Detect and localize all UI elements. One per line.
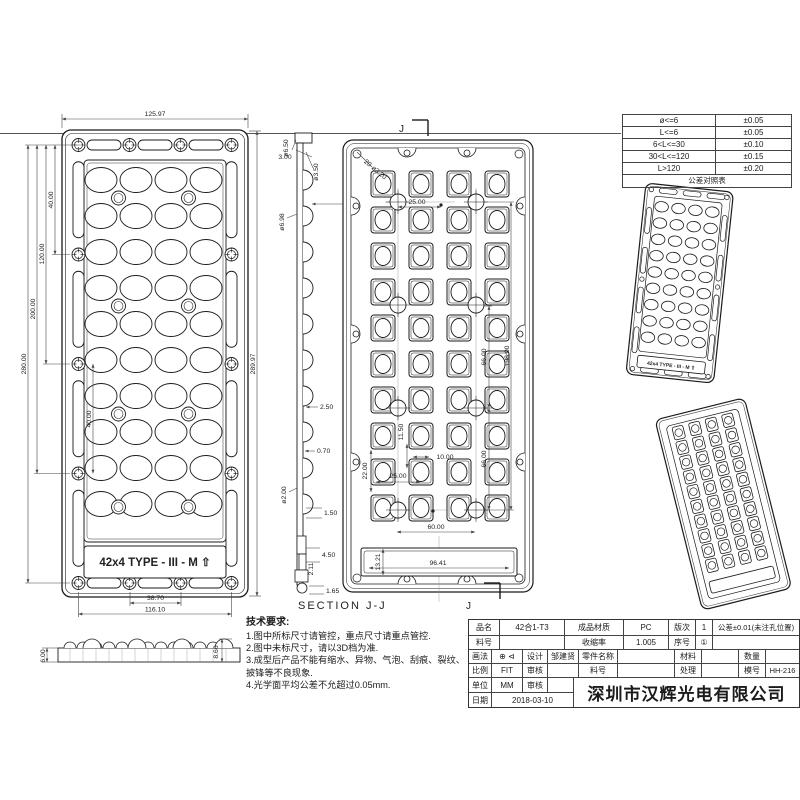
tb-shrinkage: 1.005 xyxy=(624,636,669,649)
section-jj-view: 20-ø3.20 25.00 66.00 66.00 198.00 11.50 … xyxy=(343,120,533,612)
tb-label: 成品材质 xyxy=(565,620,624,635)
dim-side-200: ø2.00 xyxy=(281,486,288,504)
tb-label: 品名 xyxy=(469,620,500,635)
dim-sec-9641: 96.41 xyxy=(429,560,446,567)
dim-side-250: 2.50 xyxy=(320,404,333,411)
tol-range: L<=6 xyxy=(623,127,716,138)
tolerance-row: 30<L<=120 ±0.15 xyxy=(623,151,791,163)
tb-label: 单位 xyxy=(469,678,492,692)
tb-label: 料号 xyxy=(469,636,500,649)
tb-row2: 料号 收缩率 1.005 序号 ① xyxy=(469,636,799,650)
tb-row5: 单位 MM 审核 xyxy=(469,678,573,693)
dim-sec-2200: 22.00 xyxy=(362,462,369,479)
tb-empty xyxy=(713,636,799,649)
dim-flat-600: 6.00 xyxy=(40,649,47,662)
tol-value: ±0.05 xyxy=(716,127,791,138)
tb-label: 设计 xyxy=(523,650,548,663)
drawing-sheet: 42x4 TYPE - III - M ⇧ xyxy=(0,0,800,800)
lens-profile-bumps xyxy=(303,170,313,514)
dim-sec-66a: 66.00 xyxy=(481,348,488,365)
j-bracket-top xyxy=(412,120,428,136)
tb-bottom: 单位 MM 审核 日期 2018-03-10 深圳市汉辉光电有限公司 xyxy=(469,678,799,707)
tb-label: 序号 xyxy=(669,636,696,649)
note-line: 2.图中未标尺寸，请以3D档为准. xyxy=(246,642,474,654)
tol-value: ±0.15 xyxy=(716,151,791,162)
dim-side-300a: 3.00 xyxy=(278,154,291,161)
tolerance-row: ø<=6 ±0.05 xyxy=(623,115,791,127)
iso-view-front: 42x4 TYPE - III - M ⇧ xyxy=(626,183,734,383)
tb-part-name: 42合1-T3 xyxy=(500,620,565,635)
dim-sec-6000: 60.00 xyxy=(427,524,444,531)
tb-tolerance-note: 公差±0.01(未注孔位置) xyxy=(713,620,799,635)
tb-check xyxy=(548,664,579,677)
section-title: SECTION J-J xyxy=(298,600,387,612)
tb-row4: 比例 FIT 审核 料号 处理 模号 HH-216 xyxy=(469,664,799,678)
dim-front-height: 289.97 xyxy=(250,353,257,374)
dim-sec-1321: 13.21 xyxy=(375,553,382,570)
company-name: 深圳市汉辉光电有限公司 xyxy=(574,678,799,707)
tb-row1: 品名 42合1-T3 成品材质 PC 版次 1 公差±0.01(未注孔位置) xyxy=(469,620,799,636)
tb-treatment xyxy=(702,664,739,677)
tb-label: 审核 xyxy=(523,664,548,677)
note-line: 1.图中所标尺寸请管控，重点尺寸请重点管控. xyxy=(246,630,474,642)
j-mark-top: J xyxy=(399,124,404,135)
tb-label: 收缩率 xyxy=(565,636,624,649)
dim-side-211: 2.11 xyxy=(308,562,315,575)
tolerance-footer: 公差对照表 xyxy=(623,175,791,187)
dim-front-11610: 116.10 xyxy=(145,607,166,614)
tb-label: 版次 xyxy=(669,620,696,635)
tb-scale: FIT xyxy=(492,664,523,677)
technical-notes: 技术要求: 1.图中所标尺寸请管控，重点尺寸请重点管控. 2.图中未标尺寸，请以… xyxy=(246,616,474,691)
tb-label: 日期 xyxy=(469,693,492,707)
dim-side-070: 0.70 xyxy=(317,448,330,455)
dim-front-280: 280.00 xyxy=(21,353,28,374)
tb-seq: ① xyxy=(696,636,713,649)
tol-value: ±0.10 xyxy=(716,139,791,150)
tb-row6: 日期 2018-03-10 xyxy=(469,693,573,707)
tb-rev: 1 xyxy=(696,620,713,635)
tolerance-row: 6<L<=30 ±0.10 xyxy=(623,139,791,151)
center-dot-bottom xyxy=(431,509,434,512)
tolerance-row: L>120 ±0.20 xyxy=(623,163,791,175)
tb-label: 画法 xyxy=(469,650,492,663)
projection-symbol: ⊕ ⊲ xyxy=(492,650,523,663)
iso-view-back xyxy=(655,398,792,610)
tol-range: L>120 xyxy=(623,163,716,174)
dim-side-698: ø6.98 xyxy=(279,213,286,231)
tol-value: ±0.05 xyxy=(716,115,791,126)
dim-flat-860: 8.60 xyxy=(213,645,220,658)
tb-check2 xyxy=(548,678,573,692)
tb-unit: MM xyxy=(492,678,523,692)
tb-mold-no: HH-216 xyxy=(766,664,799,677)
tol-range: 6<L<=30 xyxy=(623,139,716,150)
dim-front-width: 125.97 xyxy=(145,111,166,118)
notes-title: 技术要求: xyxy=(246,616,474,629)
tb-label: 零件名称 xyxy=(579,650,618,663)
title-block: 品名 42合1-T3 成品材质 PC 版次 1 公差±0.01(未注孔位置) 料… xyxy=(468,619,800,708)
dim-side-350: ø3.50 xyxy=(313,163,320,181)
dim-sec-25a: 25.00 xyxy=(408,199,425,206)
tb-qty xyxy=(766,650,799,663)
note-line: 3.成型后产品不能有缩水、异物、气泡、刮痕、裂纹、披锋等不良现象. xyxy=(246,654,474,678)
j-mark-bottom: J xyxy=(466,601,471,612)
tb-label: 处理 xyxy=(675,664,702,677)
tb-label: 模号 xyxy=(739,664,766,677)
dim-front-3870: 38.70 xyxy=(147,595,164,602)
front-view: 42x4 TYPE - III - M ⇧ xyxy=(21,111,261,617)
tb-material: PC xyxy=(624,620,669,635)
tol-footer-text: 公差对照表 xyxy=(623,175,791,187)
tolerance-row: L<=6 ±0.05 xyxy=(623,127,791,139)
tb-label: 料号 xyxy=(579,664,618,677)
front-type-label: 42x4 TYPE - III - M ⇧ xyxy=(99,556,210,569)
dim-sec-1000: 10.00 xyxy=(436,454,453,461)
tb-designer: 邹建贤 xyxy=(548,650,579,663)
tol-range: ø<=6 xyxy=(623,115,716,126)
tol-value: ±0.20 xyxy=(716,163,791,174)
dim-front-40b: 40.00 xyxy=(86,410,93,427)
note-line: 4.光学面平均公差不允超过0.05mm. xyxy=(246,679,474,691)
tb-part-no xyxy=(500,636,565,649)
tb-material2 xyxy=(702,650,739,663)
tb-label: 审核 xyxy=(523,678,548,692)
tb-row3: 画法 ⊕ ⊲ 设计 邹建贤 零件名称 材料 数量 xyxy=(469,650,799,664)
dim-front-120: 120.00 xyxy=(39,243,46,264)
dim-side-165: 1.65 xyxy=(326,588,339,595)
tb-part-no2 xyxy=(618,664,675,677)
tb-label: 比例 xyxy=(469,664,492,677)
dim-side-150: 1.50 xyxy=(324,510,337,517)
tol-range: 30<L<=120 xyxy=(623,151,716,162)
tolerance-table: ø<=6 ±0.05 L<=6 ±0.05 6<L<=30 ±0.10 30<L… xyxy=(622,114,792,188)
dim-sec-1150: 11.50 xyxy=(398,424,405,441)
tb-bottom-left: 单位 MM 审核 日期 2018-03-10 xyxy=(469,678,574,707)
flat-side-view: 6.00 8.60 xyxy=(40,639,240,663)
tb-label: 材料 xyxy=(675,650,702,663)
tb-date: 2018-03-10 xyxy=(492,693,573,707)
dim-sec-198: 198.00 xyxy=(504,345,511,366)
dim-front-200: 200.00 xyxy=(30,298,37,319)
tb-label: 数量 xyxy=(739,650,766,663)
tb-component-name xyxy=(618,650,675,663)
center-dot-top xyxy=(439,203,442,206)
dim-side-450: 4.50 xyxy=(322,552,335,559)
dim-front-40a: 40.00 xyxy=(48,191,55,208)
dim-sec-66b: 66.00 xyxy=(481,450,488,467)
dim-sec-25b: 25.00 xyxy=(389,473,406,480)
